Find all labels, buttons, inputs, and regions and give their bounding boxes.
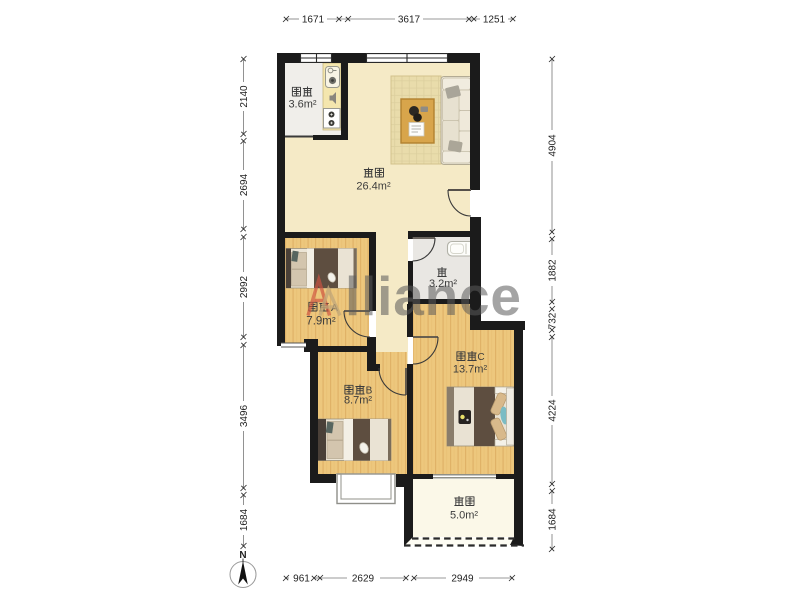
svg-text:1251: 1251	[483, 15, 506, 26]
svg-text:N: N	[239, 550, 246, 561]
svg-text:1671: 1671	[302, 15, 325, 26]
svg-text:lliance: lliance	[345, 265, 522, 327]
svg-text:7.9m²: 7.9m²	[306, 316, 336, 328]
svg-text:1684: 1684	[239, 508, 250, 531]
svg-text:1684: 1684	[548, 508, 559, 531]
svg-text:732: 732	[548, 312, 559, 329]
svg-text:2629: 2629	[352, 574, 375, 585]
svg-text:5.0m²: 5.0m²	[450, 510, 478, 522]
svg-text:2140: 2140	[239, 85, 250, 108]
svg-text:3496: 3496	[239, 404, 250, 427]
svg-text:2949: 2949	[451, 574, 474, 585]
svg-text:2694: 2694	[239, 173, 250, 196]
svg-text:13.7m²: 13.7m²	[453, 364, 488, 376]
svg-text:3617: 3617	[398, 15, 421, 26]
svg-text:2992: 2992	[239, 275, 250, 298]
svg-text:26.4m²: 26.4m²	[356, 181, 391, 193]
svg-text:8.7m²: 8.7m²	[344, 395, 372, 407]
svg-text:961: 961	[293, 574, 310, 585]
svg-text:1882: 1882	[548, 259, 559, 282]
svg-text:4224: 4224	[548, 399, 559, 422]
svg-text:4904: 4904	[548, 134, 559, 157]
svg-text:3.6m²: 3.6m²	[288, 99, 316, 111]
svg-text:C: C	[477, 352, 484, 363]
